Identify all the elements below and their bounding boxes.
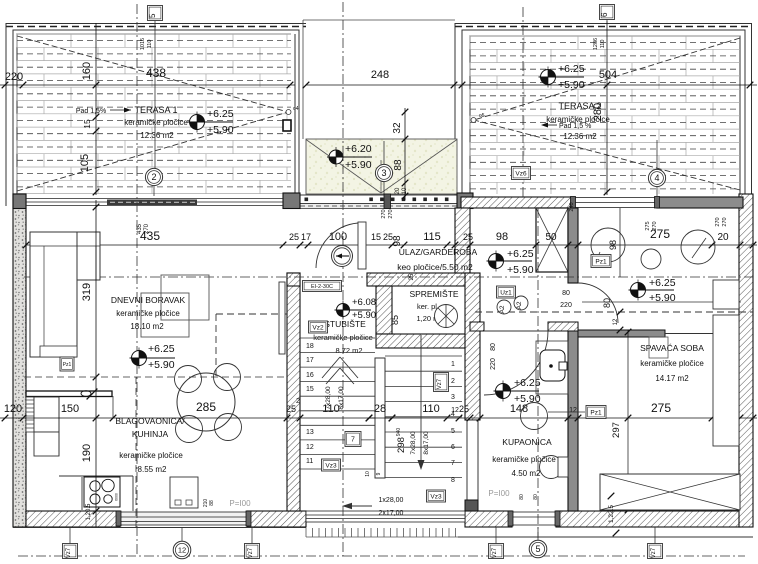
svg-text:120: 120 <box>4 403 22 415</box>
svg-text:940: 940 <box>396 428 402 437</box>
svg-text:25: 25 <box>409 273 415 280</box>
svg-text:7: 7 <box>451 460 455 467</box>
svg-text:keramičke pločice: keramičke pločice <box>124 118 188 127</box>
svg-text:15: 15 <box>306 386 314 393</box>
svg-text:270: 270 <box>715 217 721 226</box>
svg-text:18.10 m2: 18.10 m2 <box>130 322 164 331</box>
svg-text:7x28,00: 7x28,00 <box>325 386 332 410</box>
svg-text:+6.08: +6.08 <box>352 297 376 308</box>
svg-text:25: 25 <box>289 232 299 242</box>
svg-text:438: 438 <box>146 66 166 80</box>
svg-text:Vz6: Vz6 <box>515 170 527 177</box>
svg-text:3: 3 <box>381 168 386 178</box>
svg-text:7x28,00: 7x28,00 <box>410 431 417 455</box>
svg-text:4: 4 <box>451 411 455 418</box>
svg-text:Vz7: Vz7 <box>437 378 443 389</box>
svg-text:2x17,00: 2x17,00 <box>379 510 404 517</box>
svg-text:319: 319 <box>81 283 93 301</box>
svg-text:80: 80 <box>519 494 525 500</box>
svg-text:2: 2 <box>151 172 156 182</box>
svg-text:504: 504 <box>599 69 617 81</box>
svg-text:8.55 m2: 8.55 m2 <box>138 465 167 474</box>
svg-text:10: 10 <box>402 187 408 194</box>
svg-text:Vz7: Vz7 <box>651 547 657 558</box>
svg-text:Vz3: Vz3 <box>325 462 337 469</box>
svg-text:12: 12 <box>306 444 314 451</box>
svg-text:13: 13 <box>306 429 314 436</box>
svg-text:25: 25 <box>286 404 296 414</box>
svg-text:DNEVNI BORAVAK: DNEVNI BORAVAK <box>111 295 186 305</box>
svg-text:1286: 1286 <box>593 38 599 50</box>
svg-text:80: 80 <box>490 343 497 351</box>
svg-text:keramičke pločice: keramičke pločice <box>119 451 183 460</box>
svg-text:15: 15 <box>82 119 92 129</box>
svg-text:1,22.5: 1,22.5 <box>608 505 615 523</box>
svg-text:Pz1: Pz1 <box>63 362 72 368</box>
svg-text:6: 6 <box>451 444 455 451</box>
svg-text:+5.90: +5.90 <box>345 159 372 171</box>
svg-text:80: 80 <box>562 290 570 297</box>
svg-text:6000: 6000 <box>115 493 119 501</box>
svg-text:25: 25 <box>463 232 473 242</box>
svg-text:+6.25: +6.25 <box>207 108 234 120</box>
svg-text:28: 28 <box>374 403 386 415</box>
svg-text:+6.25: +6.25 <box>148 343 175 355</box>
svg-text:+6.20: +6.20 <box>345 143 372 155</box>
svg-text:KUPAONICA: KUPAONICA <box>502 437 552 447</box>
svg-text:275: 275 <box>651 401 671 415</box>
svg-text:297: 297 <box>611 422 622 438</box>
svg-text:Vz3: Vz3 <box>430 493 442 500</box>
svg-text:85: 85 <box>390 315 400 325</box>
svg-text:keramičke pločice: keramičke pločice <box>313 333 373 342</box>
svg-text:5: 5 <box>451 428 455 435</box>
svg-text:248: 248 <box>371 69 389 81</box>
svg-text:ker. pl.: ker. pl. <box>417 302 439 311</box>
svg-text:8x17,00: 8x17,00 <box>338 386 345 410</box>
svg-text:275: 275 <box>645 221 651 230</box>
svg-text:190: 190 <box>81 444 93 462</box>
svg-text:110: 110 <box>600 40 606 49</box>
svg-text:keramičke pločice: keramičke pločice <box>116 309 180 318</box>
svg-text:keo pločice/5.50 m2: keo pločice/5.50 m2 <box>397 262 473 272</box>
svg-text:Pz1: Pz1 <box>595 258 607 265</box>
svg-text:12.36 m2: 12.36 m2 <box>140 131 174 140</box>
svg-text:+5.90: +5.90 <box>507 264 534 276</box>
svg-text:32: 32 <box>392 122 403 134</box>
svg-text:+5.90: +5.90 <box>352 310 376 321</box>
svg-text:ULAZ/GARDEROBA: ULAZ/GARDEROBA <box>399 247 478 257</box>
svg-text:1: 1 <box>451 361 455 368</box>
svg-text:Pad 1,5 %: Pad 1,5 % <box>559 123 591 130</box>
svg-text:+5.90: +5.90 <box>207 124 234 136</box>
svg-text:4: 4 <box>654 173 659 183</box>
svg-text:285: 285 <box>196 400 216 414</box>
svg-text:100: 100 <box>329 231 347 243</box>
svg-text:270: 270 <box>388 209 394 218</box>
svg-text:A2: A2 <box>516 301 523 309</box>
svg-text:115: 115 <box>423 231 441 243</box>
svg-text:P=I00: P=I00 <box>488 489 510 498</box>
svg-text:110: 110 <box>422 403 440 415</box>
svg-text:220: 220 <box>560 302 572 309</box>
svg-text:1x28,00: 1x28,00 <box>379 497 404 504</box>
svg-text:12: 12 <box>613 318 619 325</box>
svg-text:SPREMIŠTE: SPREMIŠTE <box>409 289 458 299</box>
svg-text:16: 16 <box>306 372 314 379</box>
svg-text:o5: o5 <box>479 113 485 119</box>
svg-text:keramičke pločice: keramičke pločice <box>640 359 704 368</box>
svg-text:298: 298 <box>396 437 407 453</box>
svg-text:7: 7 <box>351 436 355 443</box>
svg-text:160: 160 <box>81 62 93 80</box>
svg-text:270: 270 <box>144 223 150 234</box>
svg-text:BLAGOVAONICA/: BLAGOVAONICA/ <box>115 416 185 426</box>
svg-text:80: 80 <box>602 298 612 308</box>
svg-text:88: 88 <box>209 500 215 506</box>
svg-text:150: 150 <box>61 403 79 415</box>
svg-text:2: 2 <box>451 378 455 385</box>
svg-text:6: 6 <box>600 12 609 17</box>
svg-text:220: 220 <box>490 358 497 370</box>
svg-text:220: 220 <box>5 71 23 83</box>
svg-text:240: 240 <box>569 202 575 211</box>
svg-text:Vz2: Vz2 <box>312 324 324 331</box>
svg-text:3: 3 <box>451 394 455 401</box>
svg-text:12: 12 <box>178 546 186 555</box>
svg-text:12.36 m2: 12.36 m2 <box>563 132 597 141</box>
svg-text:8.72 m2: 8.72 m2 <box>335 346 362 355</box>
svg-text:50: 50 <box>545 232 557 243</box>
svg-text:+6.25: +6.25 <box>507 248 534 260</box>
svg-text:98: 98 <box>608 240 618 250</box>
svg-text:Vz7: Vz7 <box>492 547 498 558</box>
svg-text:5: 5 <box>535 544 540 554</box>
svg-text:Vz7: Vz7 <box>66 547 72 558</box>
svg-text:+6.25: +6.25 <box>649 277 676 289</box>
svg-text:5: 5 <box>148 13 157 18</box>
svg-text:12: 12 <box>569 407 577 414</box>
svg-text:20: 20 <box>395 187 401 194</box>
svg-text:105: 105 <box>79 154 91 172</box>
svg-text:88: 88 <box>393 159 404 171</box>
svg-text:10: 10 <box>365 471 371 477</box>
svg-text:o4: o4 <box>293 106 299 112</box>
svg-text:+6.25: +6.25 <box>558 63 585 75</box>
svg-text:98: 98 <box>496 231 508 243</box>
svg-text:270: 270 <box>381 209 387 218</box>
svg-text:+6.25: +6.25 <box>514 377 541 389</box>
svg-text:270: 270 <box>652 221 658 230</box>
svg-text:270: 270 <box>722 217 728 226</box>
svg-text:17: 17 <box>306 357 314 364</box>
svg-text:+5.90: +5.90 <box>148 359 175 371</box>
svg-text:2: 2 <box>296 398 300 405</box>
svg-text:110: 110 <box>147 40 153 49</box>
svg-text:EI-2-30C: EI-2-30C <box>311 284 333 290</box>
svg-text:Vz7: Vz7 <box>248 547 254 558</box>
svg-text:A2: A2 <box>499 305 506 313</box>
svg-text:Uz1: Uz1 <box>500 289 512 296</box>
svg-text:15: 15 <box>371 232 381 242</box>
svg-text:KUHINJA: KUHINJA <box>132 429 169 439</box>
svg-text:435: 435 <box>137 223 143 234</box>
svg-text:80: 80 <box>533 494 539 500</box>
svg-text:18: 18 <box>306 343 314 350</box>
svg-text:TERASA 1: TERASA 1 <box>134 105 177 115</box>
svg-text:1,20.5: 1,20.5 <box>86 503 92 520</box>
svg-text:20: 20 <box>717 232 729 243</box>
svg-text:280: 280 <box>592 103 604 121</box>
svg-text:SPAVAĆA SOBA: SPAVAĆA SOBA <box>640 343 704 353</box>
svg-text:1015: 1015 <box>140 38 146 50</box>
svg-text:9: 9 <box>376 472 382 475</box>
svg-text:8x17,00: 8x17,00 <box>423 431 430 455</box>
svg-text:98: 98 <box>392 235 403 247</box>
svg-text:11: 11 <box>306 458 313 465</box>
svg-text:25: 25 <box>459 404 469 414</box>
svg-text:4.50 m2: 4.50 m2 <box>512 469 541 478</box>
svg-text:17: 17 <box>301 232 311 242</box>
svg-text:Pz1: Pz1 <box>590 409 602 416</box>
svg-text:P=I00: P=I00 <box>229 499 251 508</box>
svg-text:Pad 1,5%: Pad 1,5% <box>76 108 106 115</box>
svg-text:8: 8 <box>451 477 455 484</box>
svg-text:14.17 m2: 14.17 m2 <box>655 374 689 383</box>
